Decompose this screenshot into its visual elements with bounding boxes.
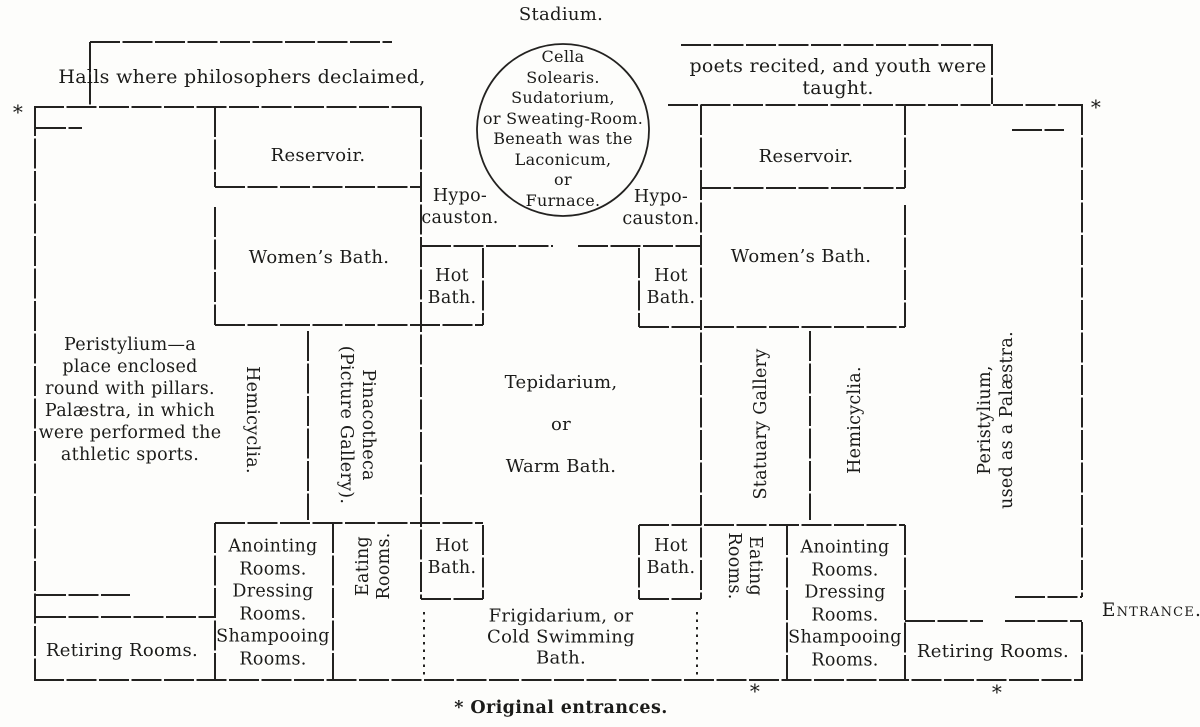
hypocauston-left-label: Hypo- causton. — [421, 185, 498, 229]
anointing-left-label: Anointing Rooms. Dressing Rooms. Shampoo… — [216, 536, 330, 671]
statuary-gallery-label: Statuary Gallery — [750, 348, 772, 499]
retiring-rooms-left-label: Retiring Rooms. — [46, 640, 198, 662]
pinacotheca-label: Pinacotheca (Picture Gallery). — [335, 346, 379, 505]
reservoir-left-label: Reservoir. — [271, 145, 366, 167]
peristylium-left-label: Peristylium—a place enclosed round with … — [39, 334, 222, 466]
hot-bath-upper-left-label: Hot Bath. — [428, 265, 477, 309]
original-entrances-caption: * Original entrances. — [454, 697, 667, 719]
peristylium-right-label: Peristylium, used as a Palæstra. — [974, 331, 1018, 509]
hemicyclia-right-label: Hemicyclia. — [844, 366, 866, 474]
asterisk-bottom-left: * — [750, 685, 760, 697]
hot-bath-lower-right-label: Hot Bath. — [647, 535, 696, 579]
hypocauston-right-label: Hypo- causton. — [622, 186, 699, 230]
asterisk-bottom-right: * — [992, 686, 1002, 698]
eating-rooms-left-label: Eating Rooms. — [353, 532, 395, 599]
asterisk-top-right: * — [1091, 101, 1101, 113]
hemicyclia-left-label: Hemicyclia. — [241, 366, 263, 474]
reservoir-right-label: Reservoir. — [759, 146, 854, 168]
asterisk-top-left: * — [13, 106, 23, 118]
hot-bath-upper-right-label: Hot Bath. — [647, 265, 696, 309]
eating-rooms-right-label: Eating Rooms. — [723, 532, 765, 599]
hall-left-label: Halls where philosophers declaimed, — [58, 66, 425, 88]
retiring-rooms-right-label: Retiring Rooms. — [917, 641, 1069, 663]
anointing-right-label: Anointing Rooms. Dressing Rooms. Shampoo… — [788, 537, 902, 672]
entrance-label: Entrance. — [1102, 600, 1200, 622]
tepidarium-label: Tepidarium, or Warm Bath. — [505, 362, 618, 488]
hall-right-label: poets recited, and youth were taught. — [657, 55, 1019, 99]
womens-bath-left-label: Women’s Bath. — [249, 247, 390, 269]
hot-bath-lower-left-label: Hot Bath. — [428, 535, 477, 579]
baths-floor-plan: Stadium. Halls where philosophers declai… — [0, 0, 1200, 727]
frigidarium-label: Frigidarium, or Cold Swimming Bath. — [487, 606, 635, 669]
stadium-label: Stadium. — [519, 4, 603, 26]
cella-solearis-label: Cella Solearis. Sudatorium, or Sweating-… — [483, 47, 643, 211]
womens-bath-right-label: Women’s Bath. — [731, 246, 872, 268]
